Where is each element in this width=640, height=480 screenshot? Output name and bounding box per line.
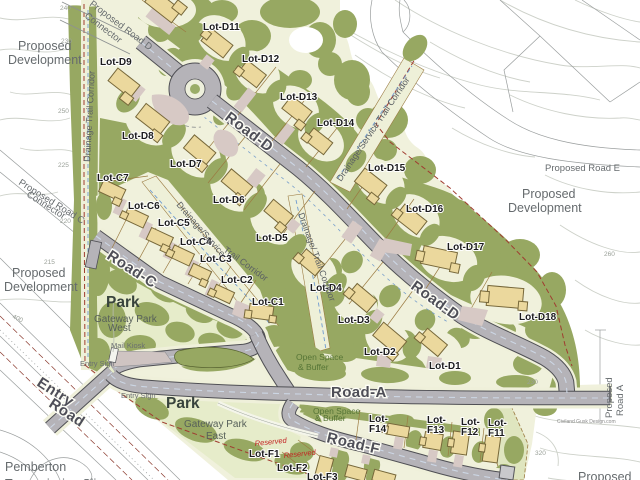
svg-text:Open Space: Open Space — [296, 352, 344, 362]
svg-text:Development: Development — [8, 53, 82, 67]
svg-text:Lot-C1: Lot-C1 — [252, 297, 284, 308]
svg-text:320: 320 — [535, 450, 546, 457]
svg-text:West: West — [108, 323, 131, 334]
svg-text:220: 220 — [60, 218, 71, 225]
svg-text:Development: Development — [508, 201, 582, 215]
svg-text:F11: F11 — [488, 428, 505, 439]
svg-text:Proposed: Proposed — [578, 470, 632, 480]
svg-text:F13: F13 — [427, 425, 445, 436]
svg-text:F12: F12 — [461, 427, 479, 438]
svg-text:Lot-F2: Lot-F2 — [277, 463, 308, 474]
svg-text:Proposed: Proposed — [12, 266, 66, 280]
svg-text:Entry Sign: Entry Sign — [121, 391, 156, 400]
svg-text:F14: F14 — [369, 424, 387, 435]
svg-text:Lot-C2: Lot-C2 — [221, 275, 253, 286]
svg-text:Proposed Road E: Proposed Road E — [545, 163, 620, 174]
svg-text:Lot-D1: Lot-D1 — [429, 361, 461, 372]
svg-text:Entry Sign: Entry Sign — [80, 359, 115, 368]
svg-text:Civiland Gusk Design.com: Civiland Gusk Design.com — [557, 419, 616, 425]
svg-text:Gateway Park: Gateway Park — [184, 419, 248, 430]
svg-text:Lot-D2: Lot-D2 — [364, 347, 396, 358]
svg-text:& Buffer: & Buffer — [315, 413, 346, 423]
svg-text:Lot-C7: Lot-C7 — [97, 173, 129, 184]
svg-text:230: 230 — [61, 38, 72, 45]
svg-text:Lot-D8: Lot-D8 — [122, 131, 154, 142]
svg-text:240: 240 — [60, 5, 71, 12]
svg-text:Lot-D5: Lot-D5 — [256, 233, 288, 244]
svg-text:260: 260 — [604, 251, 615, 258]
svg-text:Lot-D7: Lot-D7 — [170, 159, 202, 170]
svg-text:Proposed: Proposed — [522, 187, 576, 201]
svg-text:Park: Park — [106, 294, 140, 311]
svg-text:Development: Development — [4, 280, 78, 294]
svg-text:Lot-F3: Lot-F3 — [307, 472, 338, 480]
svg-text:Road-A: Road-A — [331, 384, 387, 401]
svg-text:Lot-D3: Lot-D3 — [338, 315, 370, 326]
svg-text:Lot-D9: Lot-D9 — [100, 57, 132, 68]
svg-text:230: 230 — [527, 379, 538, 386]
svg-text:Park: Park — [166, 395, 200, 412]
svg-text:Lot-F1: Lot-F1 — [249, 449, 280, 460]
svg-text:Lot-D11: Lot-D11 — [203, 22, 240, 33]
svg-text:Road A: Road A — [615, 384, 626, 416]
svg-text:Pemberton: Pemberton — [5, 460, 66, 474]
svg-text:Lot-D14: Lot-D14 — [317, 118, 355, 129]
svg-text:Lot-D13: Lot-D13 — [280, 92, 318, 103]
svg-text:250: 250 — [58, 108, 69, 115]
svg-text:Lot-C5: Lot-C5 — [158, 218, 190, 229]
svg-text:215: 215 — [44, 259, 55, 266]
svg-text:Lot-D6: Lot-D6 — [213, 195, 245, 206]
svg-text:Lot-D18: Lot-D18 — [519, 312, 557, 323]
svg-text:East: East — [206, 431, 226, 442]
svg-text:Proposed: Proposed — [604, 377, 615, 418]
svg-text:Lot-D16: Lot-D16 — [406, 204, 444, 215]
svg-text:225: 225 — [58, 162, 69, 169]
svg-text:& Buffer: & Buffer — [298, 362, 329, 372]
svg-text:Mail Kiosk: Mail Kiosk — [111, 341, 145, 350]
svg-text:Lot-C6: Lot-C6 — [128, 201, 160, 212]
svg-text:Lot-D15: Lot-D15 — [368, 163, 406, 174]
svg-text:Lot-D12: Lot-D12 — [242, 54, 280, 65]
svg-text:Lot-D17: Lot-D17 — [447, 242, 485, 253]
